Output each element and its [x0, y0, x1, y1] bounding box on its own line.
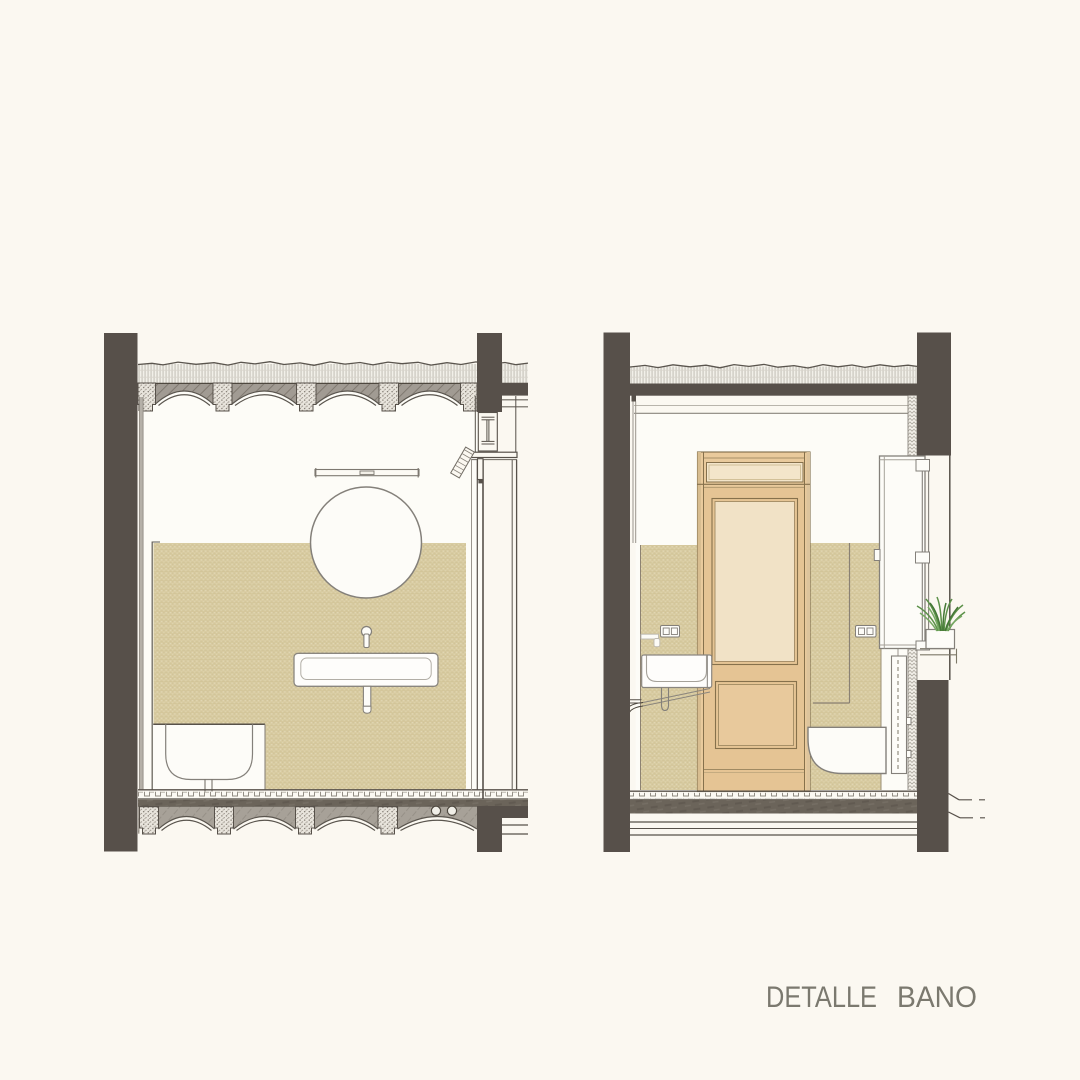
svg-text:DETALLE: DETALLE — [766, 981, 877, 1014]
svg-text:BANO: BANO — [897, 981, 977, 1014]
